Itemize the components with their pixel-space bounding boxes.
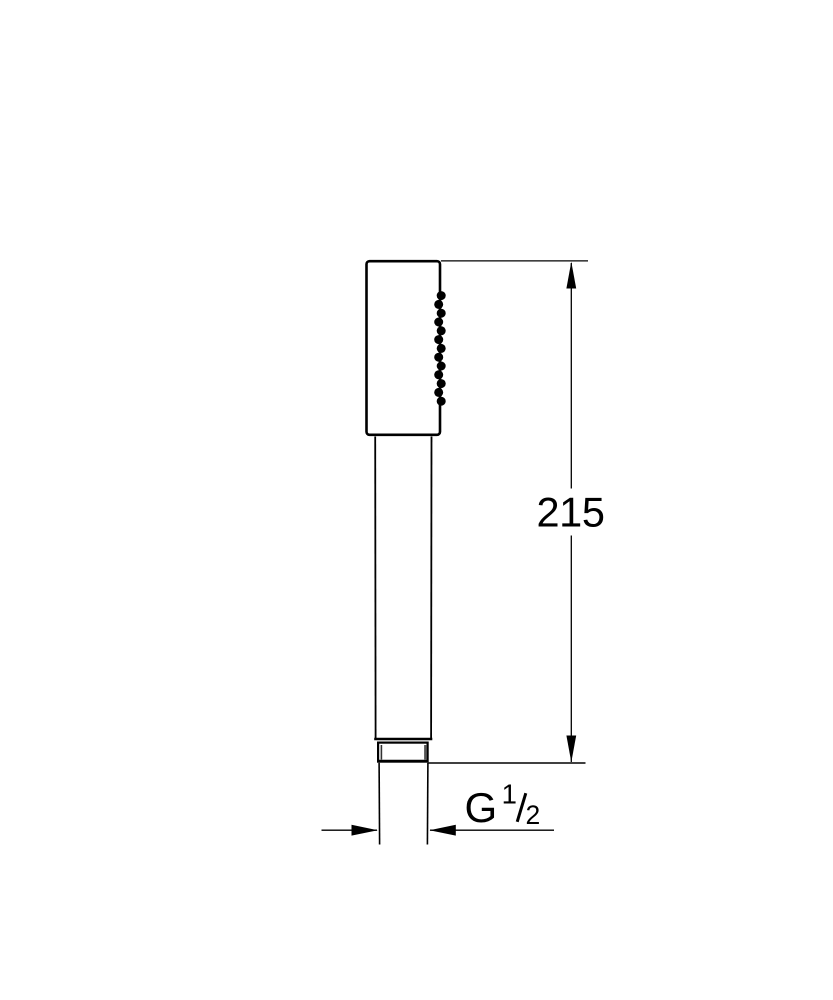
svg-text:215: 215 — [536, 489, 604, 536]
svg-text:1: 1 — [502, 778, 517, 809]
svg-text:G: G — [465, 784, 498, 831]
svg-text:2: 2 — [526, 800, 541, 830]
